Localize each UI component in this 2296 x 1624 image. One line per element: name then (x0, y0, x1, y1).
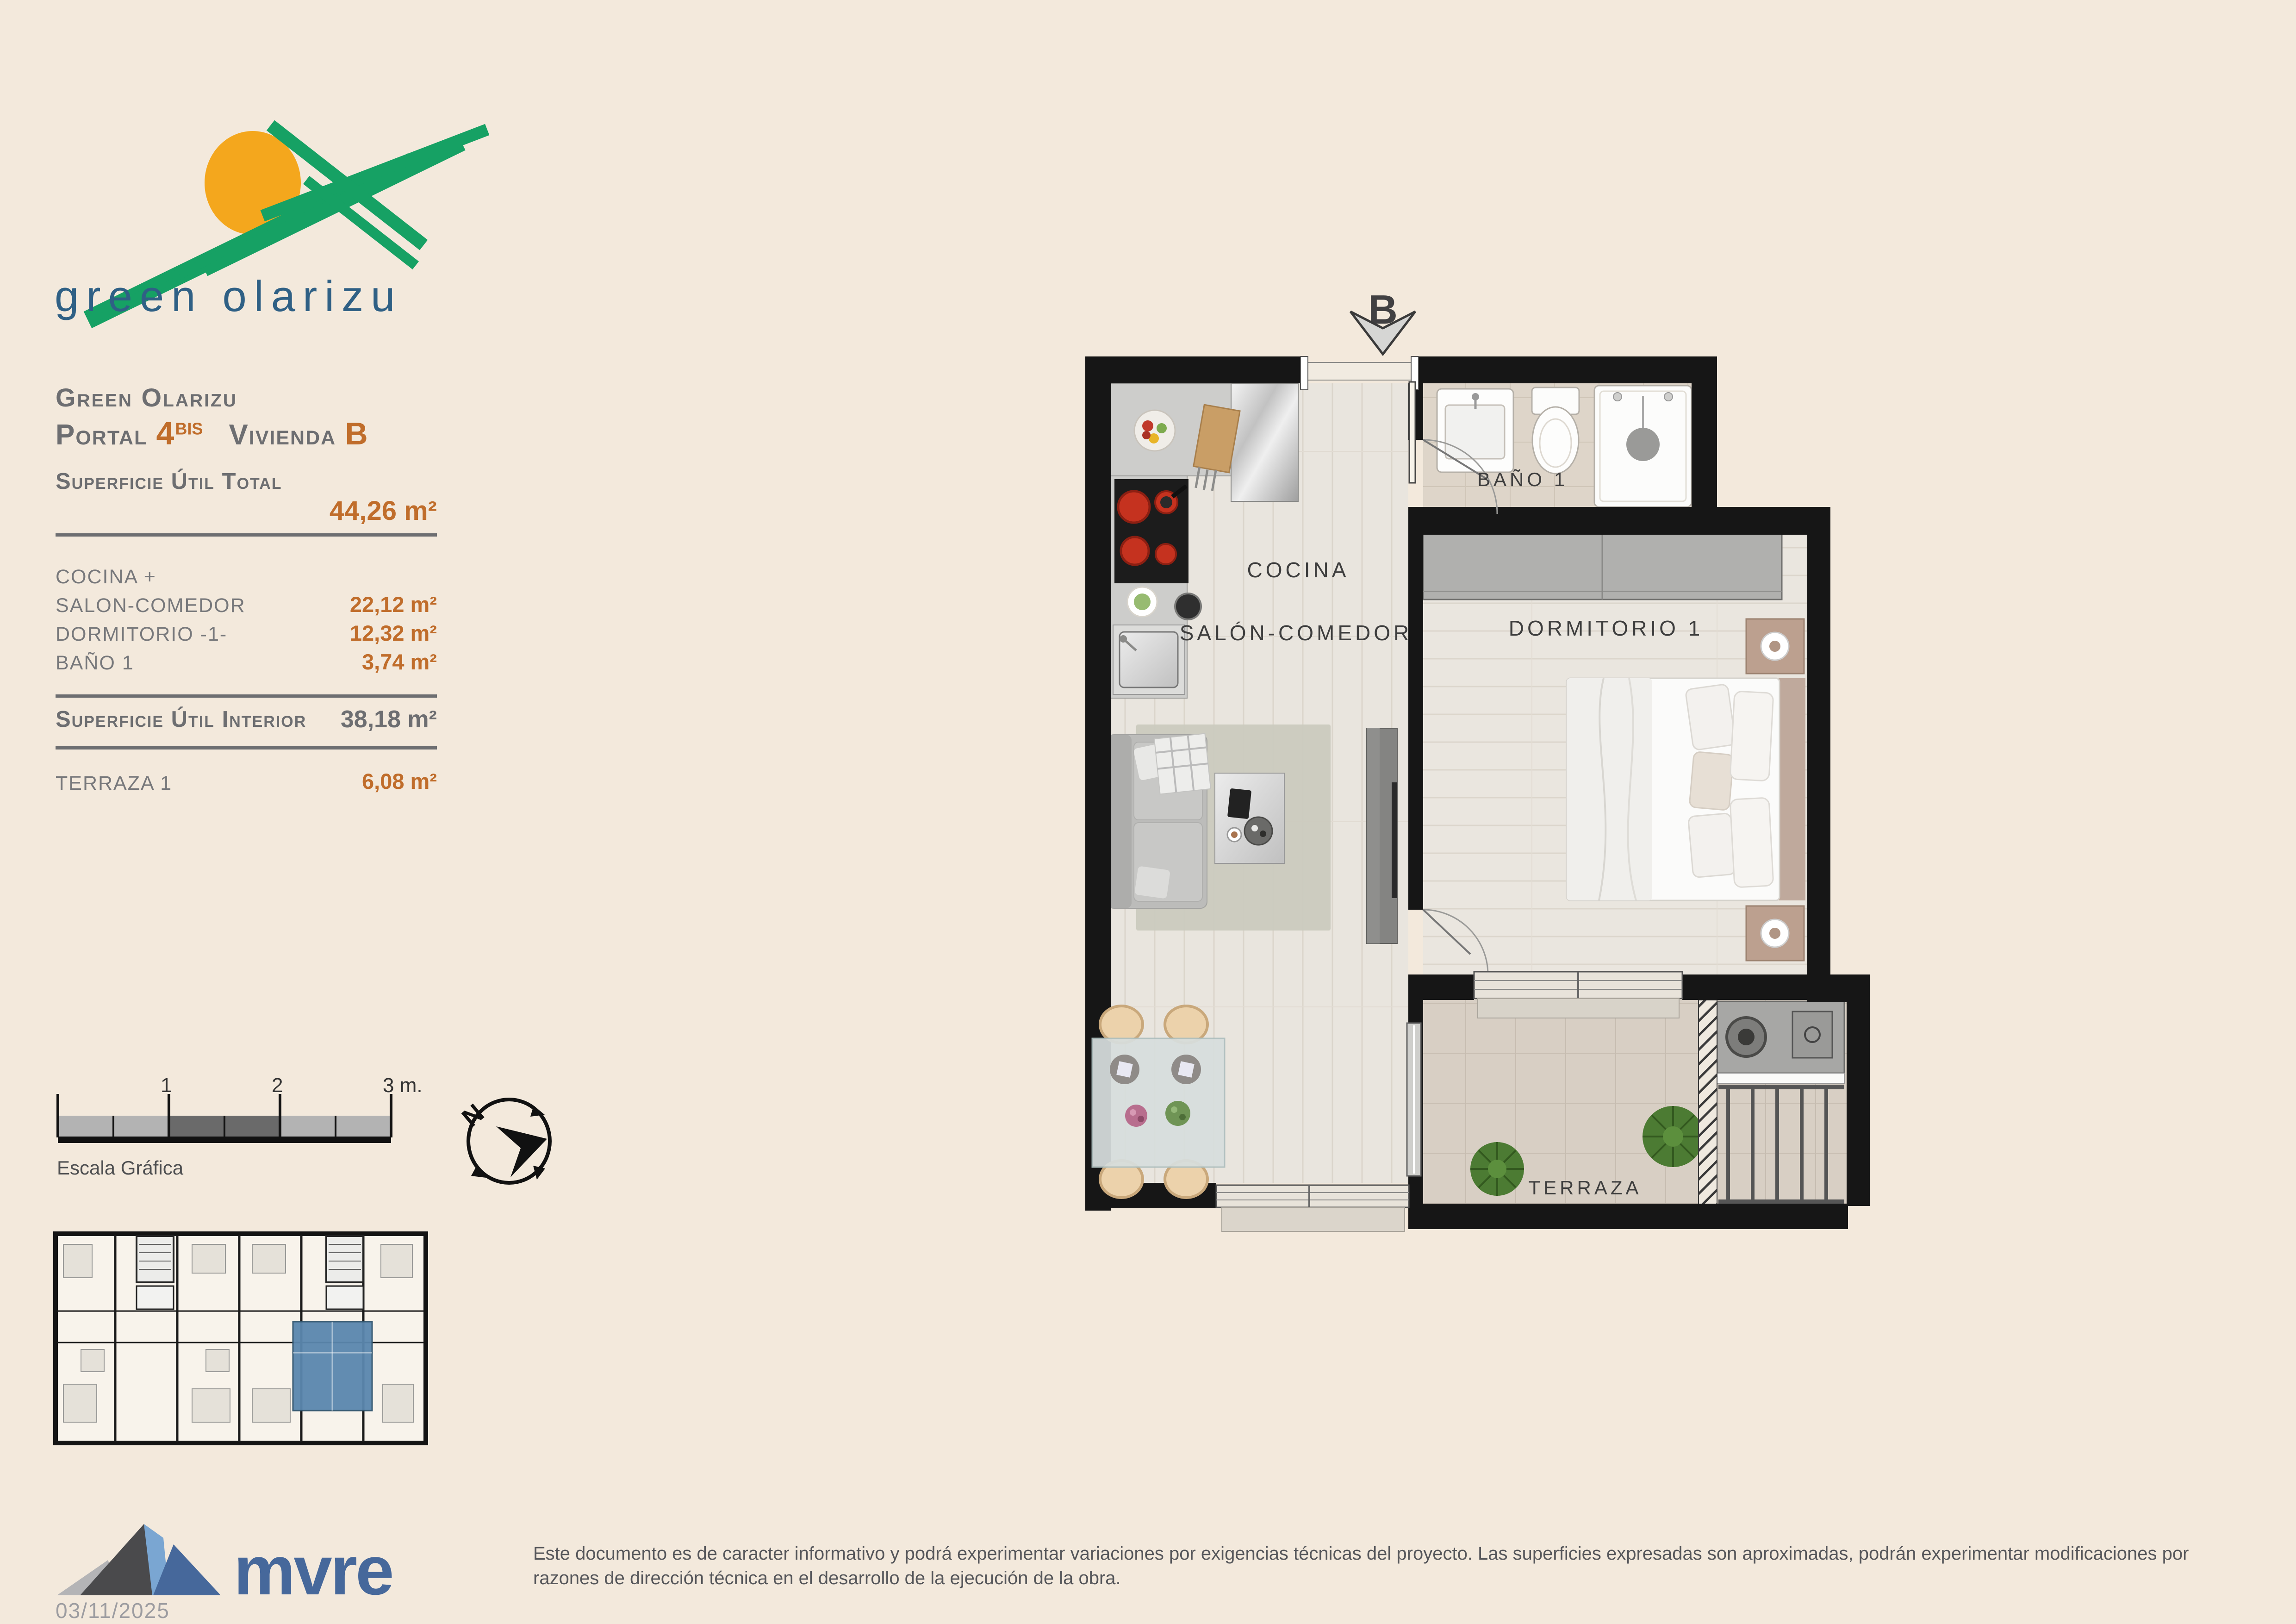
mvre-logo: mvre (53, 1518, 405, 1605)
surface-row: BAÑO 1 3,74 m² (56, 649, 437, 677)
plaid-blanket (1154, 734, 1211, 794)
legal-disclaimer: Este documento es de caracter informativ… (533, 1542, 2296, 1591)
surface-row-value: 3,74 m² (362, 649, 437, 675)
room-label-bedroom: DORMITORIO 1 (1509, 616, 1704, 640)
nightstand (1746, 619, 1804, 674)
surface-row-label: DORMITORIO -1- (56, 623, 227, 646)
tablet (1227, 788, 1251, 819)
building-overview-plan (53, 1231, 428, 1447)
bedroom-window (1474, 972, 1682, 1018)
interior-surface-value: 38,18 m² (56, 706, 437, 733)
shower-drain-icon (1626, 428, 1660, 461)
laundry-area (1717, 1001, 1844, 1083)
surface-row: SALON-COMEDOR 22,12 m² (56, 591, 437, 620)
nightstand (1746, 906, 1804, 961)
brand-wordmark: green olarizu (55, 272, 402, 320)
fridge (1231, 383, 1298, 501)
project-title: Green Olarizu (56, 382, 237, 412)
terrace-sliding-door (1407, 1023, 1421, 1176)
north-label: N (458, 1098, 489, 1132)
television (1392, 782, 1397, 898)
scale-caption: Escala Gráfica (57, 1157, 184, 1179)
wardrobe (1423, 532, 1782, 600)
surface-row-label: BAÑO 1 (56, 652, 134, 675)
kitchen-sink (1113, 625, 1185, 694)
scale-tick-label: 1 (161, 1076, 172, 1097)
pillow (1685, 684, 1736, 750)
portal-number: 4 (156, 415, 175, 451)
decor-bowl (1244, 817, 1272, 845)
surface-row-label: COCINA + (56, 566, 156, 588)
pillow (1688, 813, 1736, 878)
room-label-living: SALÓN-COMEDOR (1180, 621, 1412, 645)
pillow (1730, 691, 1773, 781)
document-date: 03/11/2025 (56, 1598, 170, 1623)
disclaimer-line: razones de dirección técnica en el desar… (533, 1566, 2296, 1591)
divider-rule (56, 746, 437, 750)
entrance-marker: B (1333, 275, 1444, 361)
scale-segments (58, 1094, 391, 1143)
toilet (1532, 387, 1579, 474)
vivienda-label: Vivienda (229, 419, 345, 451)
room-label-terrace: TERRAZA (1528, 1177, 1642, 1199)
hatched-wall (1699, 1000, 1717, 1205)
bathroom-sink (1437, 389, 1513, 472)
terrace-plant (1470, 1142, 1524, 1196)
table-plant (1165, 1101, 1190, 1126)
surface-row-value: 22,12 m² (350, 592, 437, 617)
terrace-floor (1423, 1000, 1699, 1204)
pillow (1730, 798, 1773, 887)
entrance-door-leaf (1409, 382, 1415, 483)
highlighted-unit (293, 1322, 372, 1411)
portal-label: Portal (56, 419, 156, 451)
surface-row: DORMITORIO -1- 12,32 m² (56, 620, 437, 649)
scale-tick-label: 3 m. (383, 1076, 423, 1097)
double-bed (1567, 678, 1780, 900)
floor-plan-sheet: green olarizu Green Olarizu Portal 4BISV… (0, 0, 2296, 1624)
living-room-window (1216, 1185, 1409, 1231)
divider-rule (56, 694, 437, 698)
surface-row-label: SALON-COMEDOR (56, 594, 246, 617)
coffee-table (1215, 773, 1284, 863)
entrance-threshold (1305, 362, 1419, 380)
main-floor-plan: COCINA SALÓN-COMEDOR BAÑO 1 DORMITORIO 1… (1067, 354, 1870, 1234)
scale-tick-label: 2 (272, 1076, 283, 1097)
sofa (1108, 734, 1211, 908)
shower (1594, 386, 1692, 507)
total-surface-value: 44,26 m² (56, 495, 437, 526)
dining-chair (1165, 1006, 1207, 1043)
dining-chair (1100, 1006, 1143, 1043)
fruit-bowl (1134, 410, 1175, 451)
room-label-bath: BAÑO 1 (1477, 468, 1568, 490)
total-surface-label: Superficie Útil Total (56, 468, 282, 494)
divider-rule (56, 533, 437, 537)
terrace-surface-value: 6,08 m² (56, 768, 437, 794)
mvre-wordmark: mvre (234, 1531, 392, 1605)
room-label-kitchen: COCINA (1247, 558, 1350, 582)
dining-table (1092, 1038, 1225, 1167)
pillow (1689, 751, 1734, 810)
headboard (1779, 678, 1805, 900)
green-olarizu-logo: green olarizu (51, 97, 560, 333)
terrace-plant (1643, 1106, 1704, 1167)
tv-unit (1367, 728, 1397, 943)
disclaimer-line: Este documento es de caracter informativ… (533, 1542, 2296, 1566)
cooktop (1114, 479, 1188, 583)
north-compass: N (458, 1093, 565, 1194)
kitchen-appliance-icon (1175, 593, 1201, 619)
surface-row-value: 12,32 m² (350, 620, 437, 646)
scale-bar: 1 2 3 m. Escala Gráfica (53, 1076, 498, 1183)
unit-title: Portal 4BISVivienda B (56, 415, 369, 452)
portal-suffix: BIS (175, 419, 203, 438)
surface-row: COCINA + (56, 562, 437, 591)
table-flowers (1125, 1105, 1147, 1127)
vivienda-letter: B (345, 416, 368, 451)
